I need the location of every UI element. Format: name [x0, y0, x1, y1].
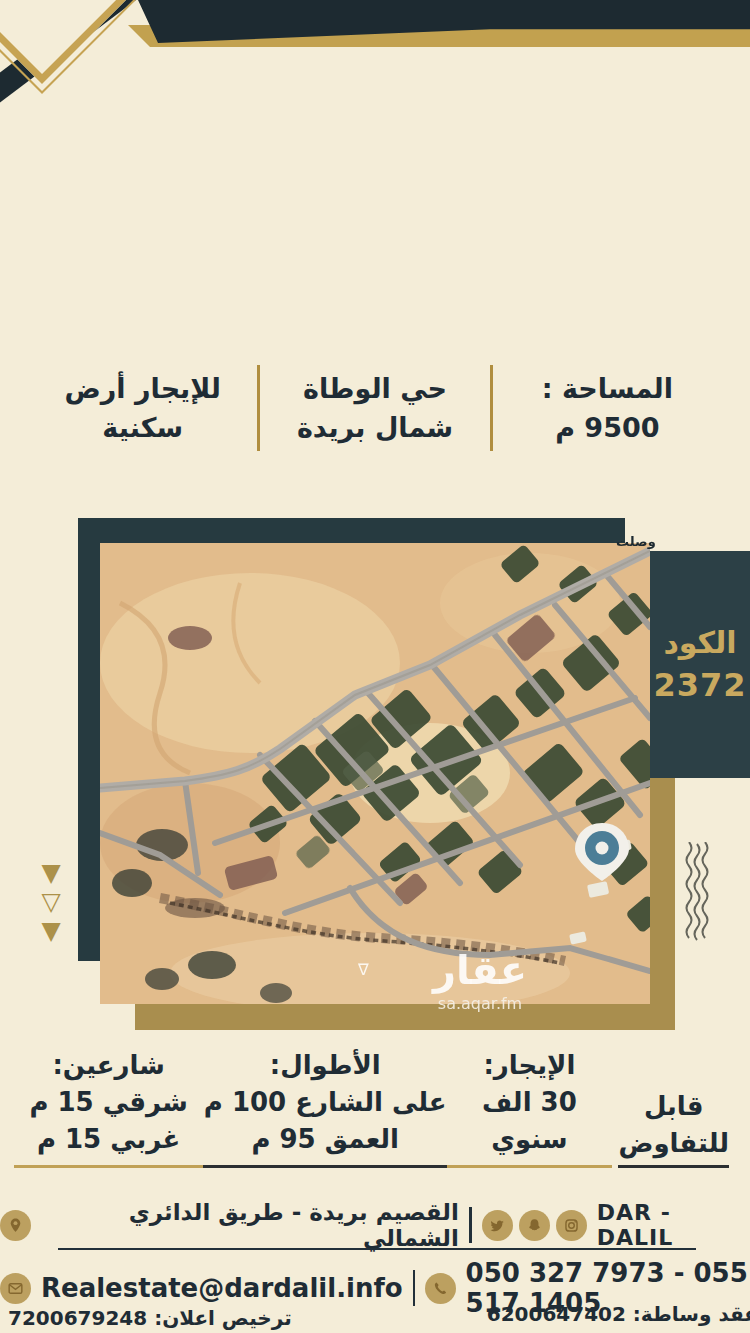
ad-license-number: ترخيص اعلان: 7200679248 [8, 1306, 292, 1330]
real-estate-poster: للإيجار أرض سكنية حي الوطاة شمال بريدة ا… [0, 0, 750, 1333]
code-label: الكود [663, 625, 736, 660]
satellite-map[interactable]: wasalt.com [100, 543, 650, 1004]
twitter-icon[interactable] [482, 1210, 513, 1241]
code-value: 2372 [653, 666, 746, 704]
streets-east: شرقي 15 م [14, 1084, 203, 1121]
spec-streets: شارعين: شرقي 15 م غربي 15 م [14, 1047, 203, 1168]
listing-type-line2: سكنية [28, 408, 257, 447]
code-panel: الكود 2372 [650, 551, 750, 778]
underline [203, 1165, 447, 1168]
streets-west: غربي 15 م [14, 1121, 203, 1158]
listing-summary: للإيجار أرض سكنية حي الوطاة شمال بريدة ا… [0, 352, 750, 464]
location-line1: حي الوطاة [260, 369, 489, 408]
divider-bar [469, 1207, 472, 1243]
divider [490, 365, 493, 451]
location-line2: شمال بريدة [260, 408, 489, 447]
triangle-hollow-icon: ▽ [28, 887, 74, 916]
lengths-title: الأطوال: [203, 1047, 447, 1084]
snapchat-icon[interactable] [519, 1210, 550, 1241]
wavy-lines-ornament [684, 842, 714, 946]
streets-title: شارعين: [14, 1047, 203, 1084]
underline [14, 1165, 203, 1168]
social-icons [482, 1210, 587, 1241]
negotiable-line2: للتفاوض [618, 1125, 729, 1168]
email-address[interactable]: Realestate@dardalil.info [41, 1273, 403, 1303]
wasalt-arabic-mark: وصلت [616, 534, 656, 549]
brokerage-contract-number: عقد وساطة: 6200647402 [487, 1302, 750, 1326]
spec-negotiable: قابل للتفاوض [612, 1088, 736, 1168]
triangle-filled-icon: ▼ [28, 916, 74, 945]
negotiable-line1: قابل [612, 1088, 736, 1125]
divider [257, 365, 260, 451]
location-pin-icon [0, 1210, 31, 1241]
listing-type-line1: للإيجار أرض [28, 369, 257, 408]
office-address: القصيم بريدة - طريق الدائري الشمالي [41, 1199, 459, 1251]
aqar-watermark-arabic: عقار [415, 948, 545, 992]
lengths-street: على الشارع 100 م [203, 1084, 447, 1121]
rent-value: 30 الف سنوي [447, 1084, 611, 1158]
aqar-pin-glyph: ∇ [358, 960, 369, 979]
lengths-depth: العمق 95 م [203, 1121, 447, 1158]
envelope-icon [0, 1273, 31, 1304]
area-value: 9500 م [493, 408, 722, 447]
footer-brand-row: DAR - DALIL القصيم بريدة - طريق الدائري … [0, 1196, 750, 1254]
underline [447, 1165, 611, 1168]
instagram-icon[interactable] [556, 1210, 587, 1241]
spec-rent: الإيجار: 30 الف سنوي [447, 1047, 611, 1168]
listing-area: المساحة : 9500 م [493, 369, 722, 447]
property-specs: شارعين: شرقي 15 م غربي 15 م الأطوال: على… [0, 1038, 750, 1168]
divider-bar [413, 1270, 415, 1306]
area-label: المساحة : [493, 369, 722, 408]
rent-title: الإيجار: [447, 1047, 611, 1084]
listing-type: للإيجار أرض سكنية [28, 369, 257, 447]
satellite-map-image [100, 543, 650, 1004]
brand-name: DAR - DALIL [597, 1200, 750, 1250]
listing-location: حي الوطاة شمال بريدة [260, 369, 489, 447]
phone-icon [425, 1273, 456, 1304]
footer-divider-line [58, 1248, 696, 1250]
spec-lengths: الأطوال: على الشارع 100 م العمق 95 م [203, 1047, 447, 1168]
triangle-ornaments: ▼ ▽ ▼ [28, 858, 74, 945]
aqar-watermark-domain: sa.aqar.fm [415, 994, 545, 1013]
aqar-watermark: عقار sa.aqar.fm [415, 948, 545, 1013]
triangle-filled-icon: ▼ [28, 858, 74, 887]
